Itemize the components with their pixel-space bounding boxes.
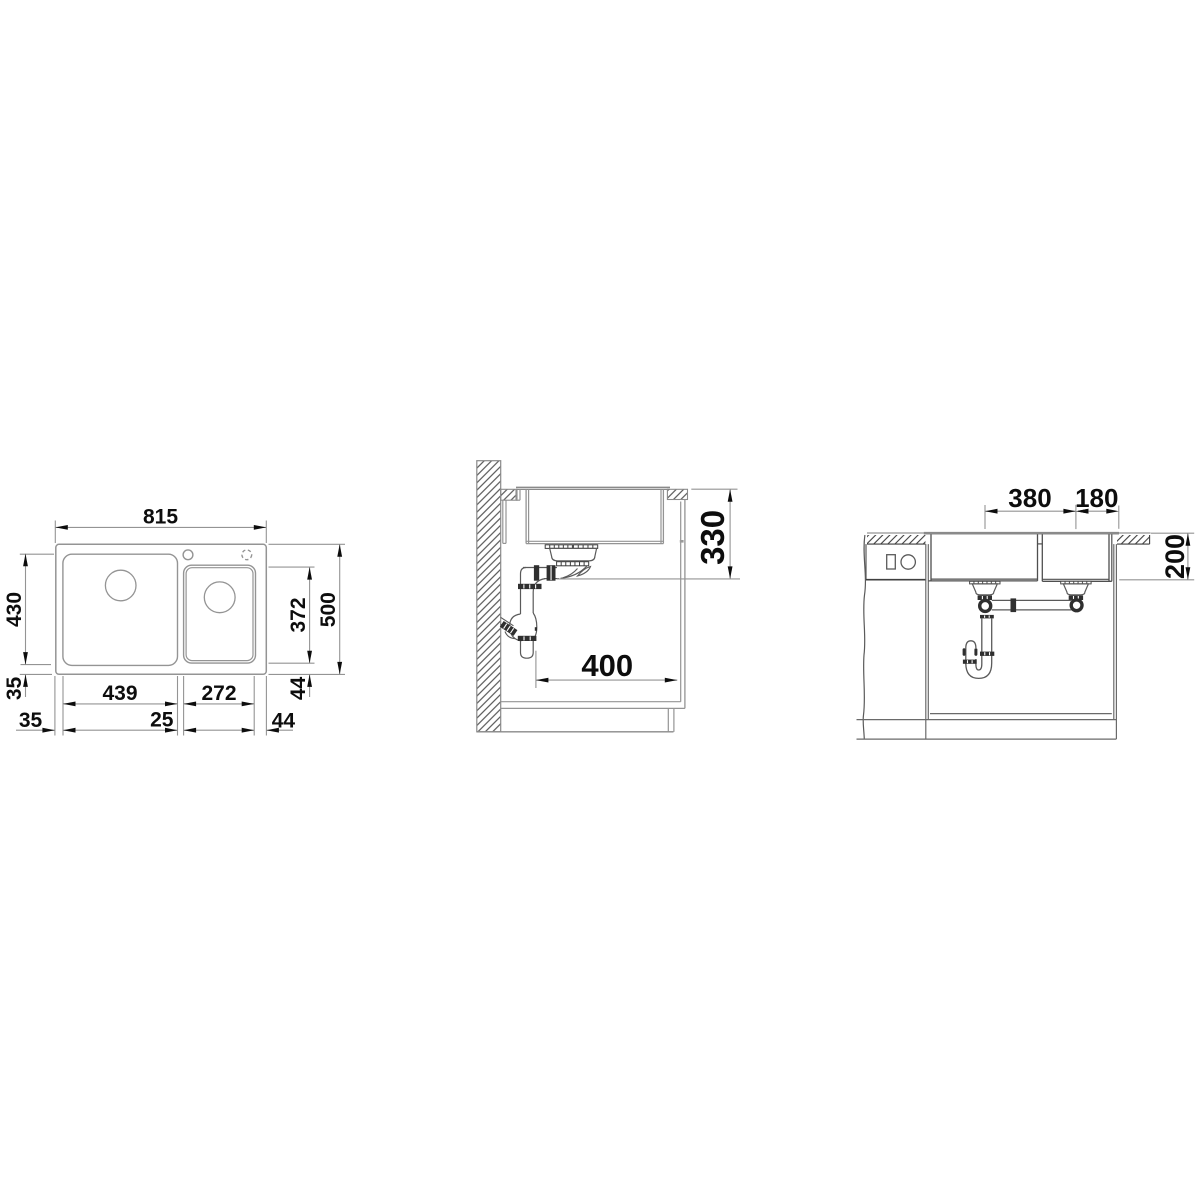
- svg-text:330: 330: [694, 510, 731, 565]
- svg-text:815: 815: [143, 506, 178, 529]
- svg-text:180: 180: [1075, 483, 1118, 513]
- svg-text:500: 500: [317, 592, 340, 627]
- svg-text:25: 25: [150, 709, 174, 732]
- svg-text:35: 35: [19, 709, 43, 732]
- svg-text:272: 272: [201, 682, 236, 705]
- svg-text:35: 35: [3, 677, 26, 701]
- svg-text:380: 380: [1008, 483, 1051, 513]
- svg-text:44: 44: [272, 710, 296, 733]
- svg-text:439: 439: [102, 682, 137, 705]
- svg-text:200: 200: [1160, 534, 1190, 579]
- svg-text:44: 44: [287, 677, 310, 701]
- svg-text:430: 430: [3, 592, 26, 627]
- svg-text:372: 372: [287, 597, 310, 632]
- svg-text:400: 400: [581, 648, 633, 683]
